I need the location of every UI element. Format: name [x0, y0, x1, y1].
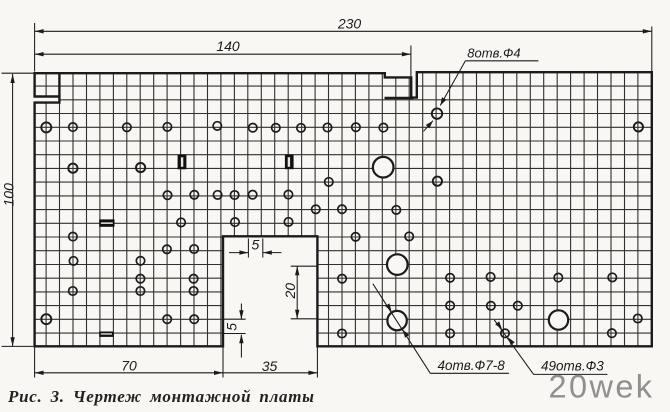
- svg-text:5: 5: [252, 236, 260, 252]
- svg-text:100: 100: [0, 183, 16, 207]
- svg-text:8отв.Ф4: 8отв.Ф4: [467, 46, 520, 61]
- svg-text:35: 35: [262, 358, 278, 374]
- svg-text:20: 20: [282, 283, 298, 300]
- svg-text:230: 230: [337, 15, 362, 31]
- svg-text:5: 5: [224, 323, 240, 331]
- svg-text:Рис. 3. Чертеж монтажной платы: Рис. 3. Чертеж монтажной платы: [7, 387, 315, 406]
- svg-text:140: 140: [216, 38, 240, 54]
- svg-text:70: 70: [121, 358, 137, 374]
- svg-text:4отв.Ф7-8: 4отв.Ф7-8: [438, 358, 506, 373]
- svg-text:20wek: 20wek: [549, 369, 655, 405]
